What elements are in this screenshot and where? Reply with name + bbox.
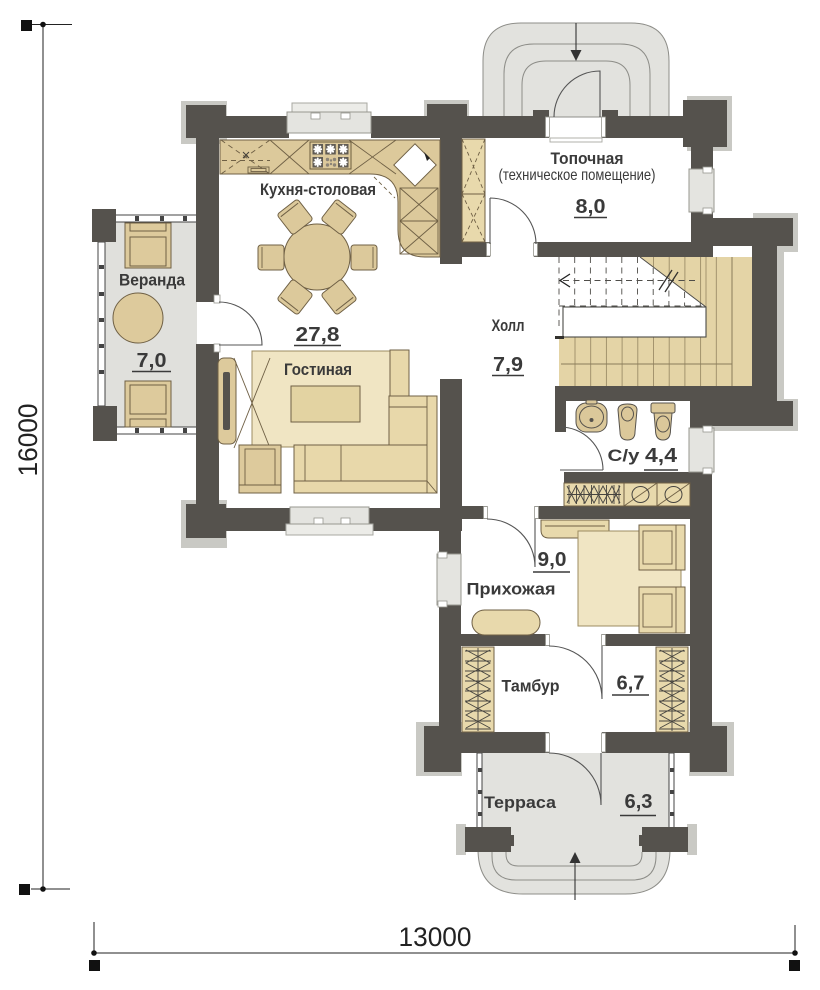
svg-text:6,7: 6,7 [617,673,645,695]
svg-text:Прихожая: Прихожая [467,580,556,599]
svg-text:Кухня-столовая: Кухня-столовая [260,180,376,199]
svg-text:(техническое помещение): (техническое помещение) [499,167,656,184]
svg-text:27,8: 27,8 [296,324,340,346]
svg-text:7,9: 7,9 [493,354,523,376]
svg-text:9,0: 9,0 [538,549,567,571]
svg-text:16000: 16000 [13,404,43,477]
svg-text:Веранда: Веранда [119,271,185,290]
svg-text:С/у: С/у [608,446,641,465]
svg-text:4,4: 4,4 [645,445,678,467]
svg-text:Тамбур: Тамбур [502,677,560,696]
svg-text:7,0: 7,0 [137,350,167,372]
svg-text:Холл: Холл [492,316,525,335]
svg-text:6,3: 6,3 [625,791,653,813]
svg-text:Терраса: Терраса [484,793,557,812]
svg-text:8,0: 8,0 [576,196,606,218]
svg-text:13000: 13000 [399,922,472,952]
svg-text:Гостиная: Гостиная [284,360,352,379]
svg-text:Топочная: Топочная [551,149,624,168]
